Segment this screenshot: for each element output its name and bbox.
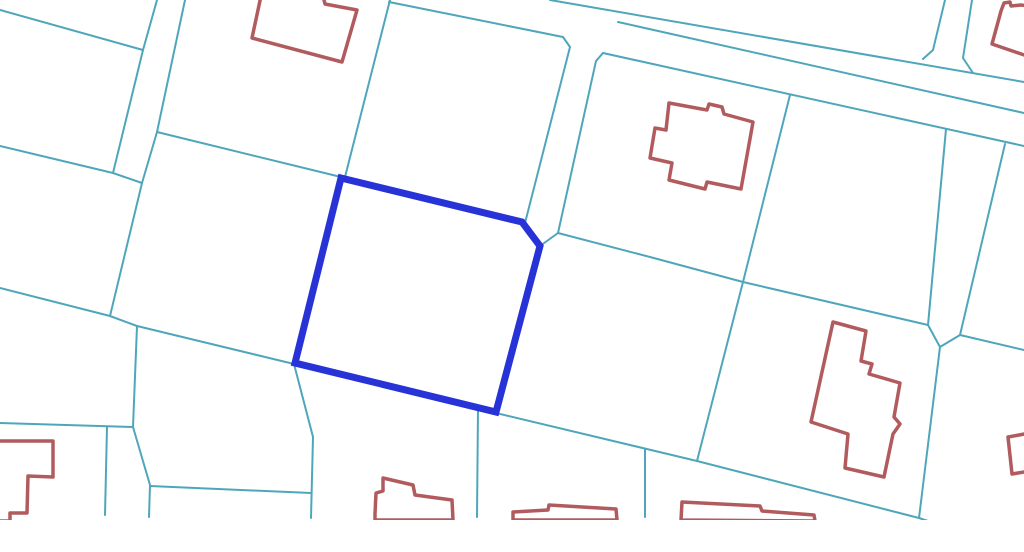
parcel-boundary-line xyxy=(0,288,294,364)
map-canvas[interactable] xyxy=(0,0,1024,552)
parcel-boundary-line xyxy=(919,325,940,518)
building-outline xyxy=(1008,433,1024,474)
parcel-boundary-line xyxy=(294,364,313,518)
building-outline xyxy=(811,322,900,477)
map-viewport[interactable] xyxy=(0,0,1024,552)
building-outline xyxy=(650,103,753,189)
parcel-boundary-line xyxy=(0,10,143,50)
building-outline xyxy=(375,478,453,520)
parcel-boundary-line xyxy=(0,146,142,183)
parcel-boundary-line xyxy=(697,95,790,461)
parcel-boundary-line xyxy=(150,486,311,493)
building-outline xyxy=(681,502,815,521)
highlighted-parcel[interactable] xyxy=(295,178,540,412)
parcel-boundary-line xyxy=(0,423,133,427)
parcel-boundary-line xyxy=(110,0,185,316)
parcel-boundary-line xyxy=(618,22,1024,113)
building-outline xyxy=(992,2,1024,57)
parcel-boundary-line xyxy=(960,335,1024,350)
parcel-boundary-line xyxy=(389,2,563,37)
parcel-boundary-line xyxy=(923,0,945,59)
parcel-boundary-line xyxy=(963,0,973,73)
building-outline xyxy=(0,441,53,521)
parcel-boundary-line xyxy=(477,409,478,517)
parcel-boundary-line xyxy=(960,144,1005,335)
parcel-boundary-line xyxy=(113,0,157,173)
parcel-boundary-line xyxy=(550,0,1024,82)
parcel-boundary-line xyxy=(540,53,603,246)
map-cut-margin xyxy=(0,520,1024,552)
parcel-boundary-line xyxy=(525,37,570,223)
parcel-boundary-line xyxy=(105,427,107,515)
parcel-boundary-line xyxy=(928,129,946,325)
parcel-boundary-line xyxy=(157,132,341,177)
parcel-boundary-line xyxy=(940,335,960,347)
parcel-boundary-line xyxy=(133,326,150,517)
building-outline xyxy=(252,0,357,62)
building-outline xyxy=(513,505,617,520)
